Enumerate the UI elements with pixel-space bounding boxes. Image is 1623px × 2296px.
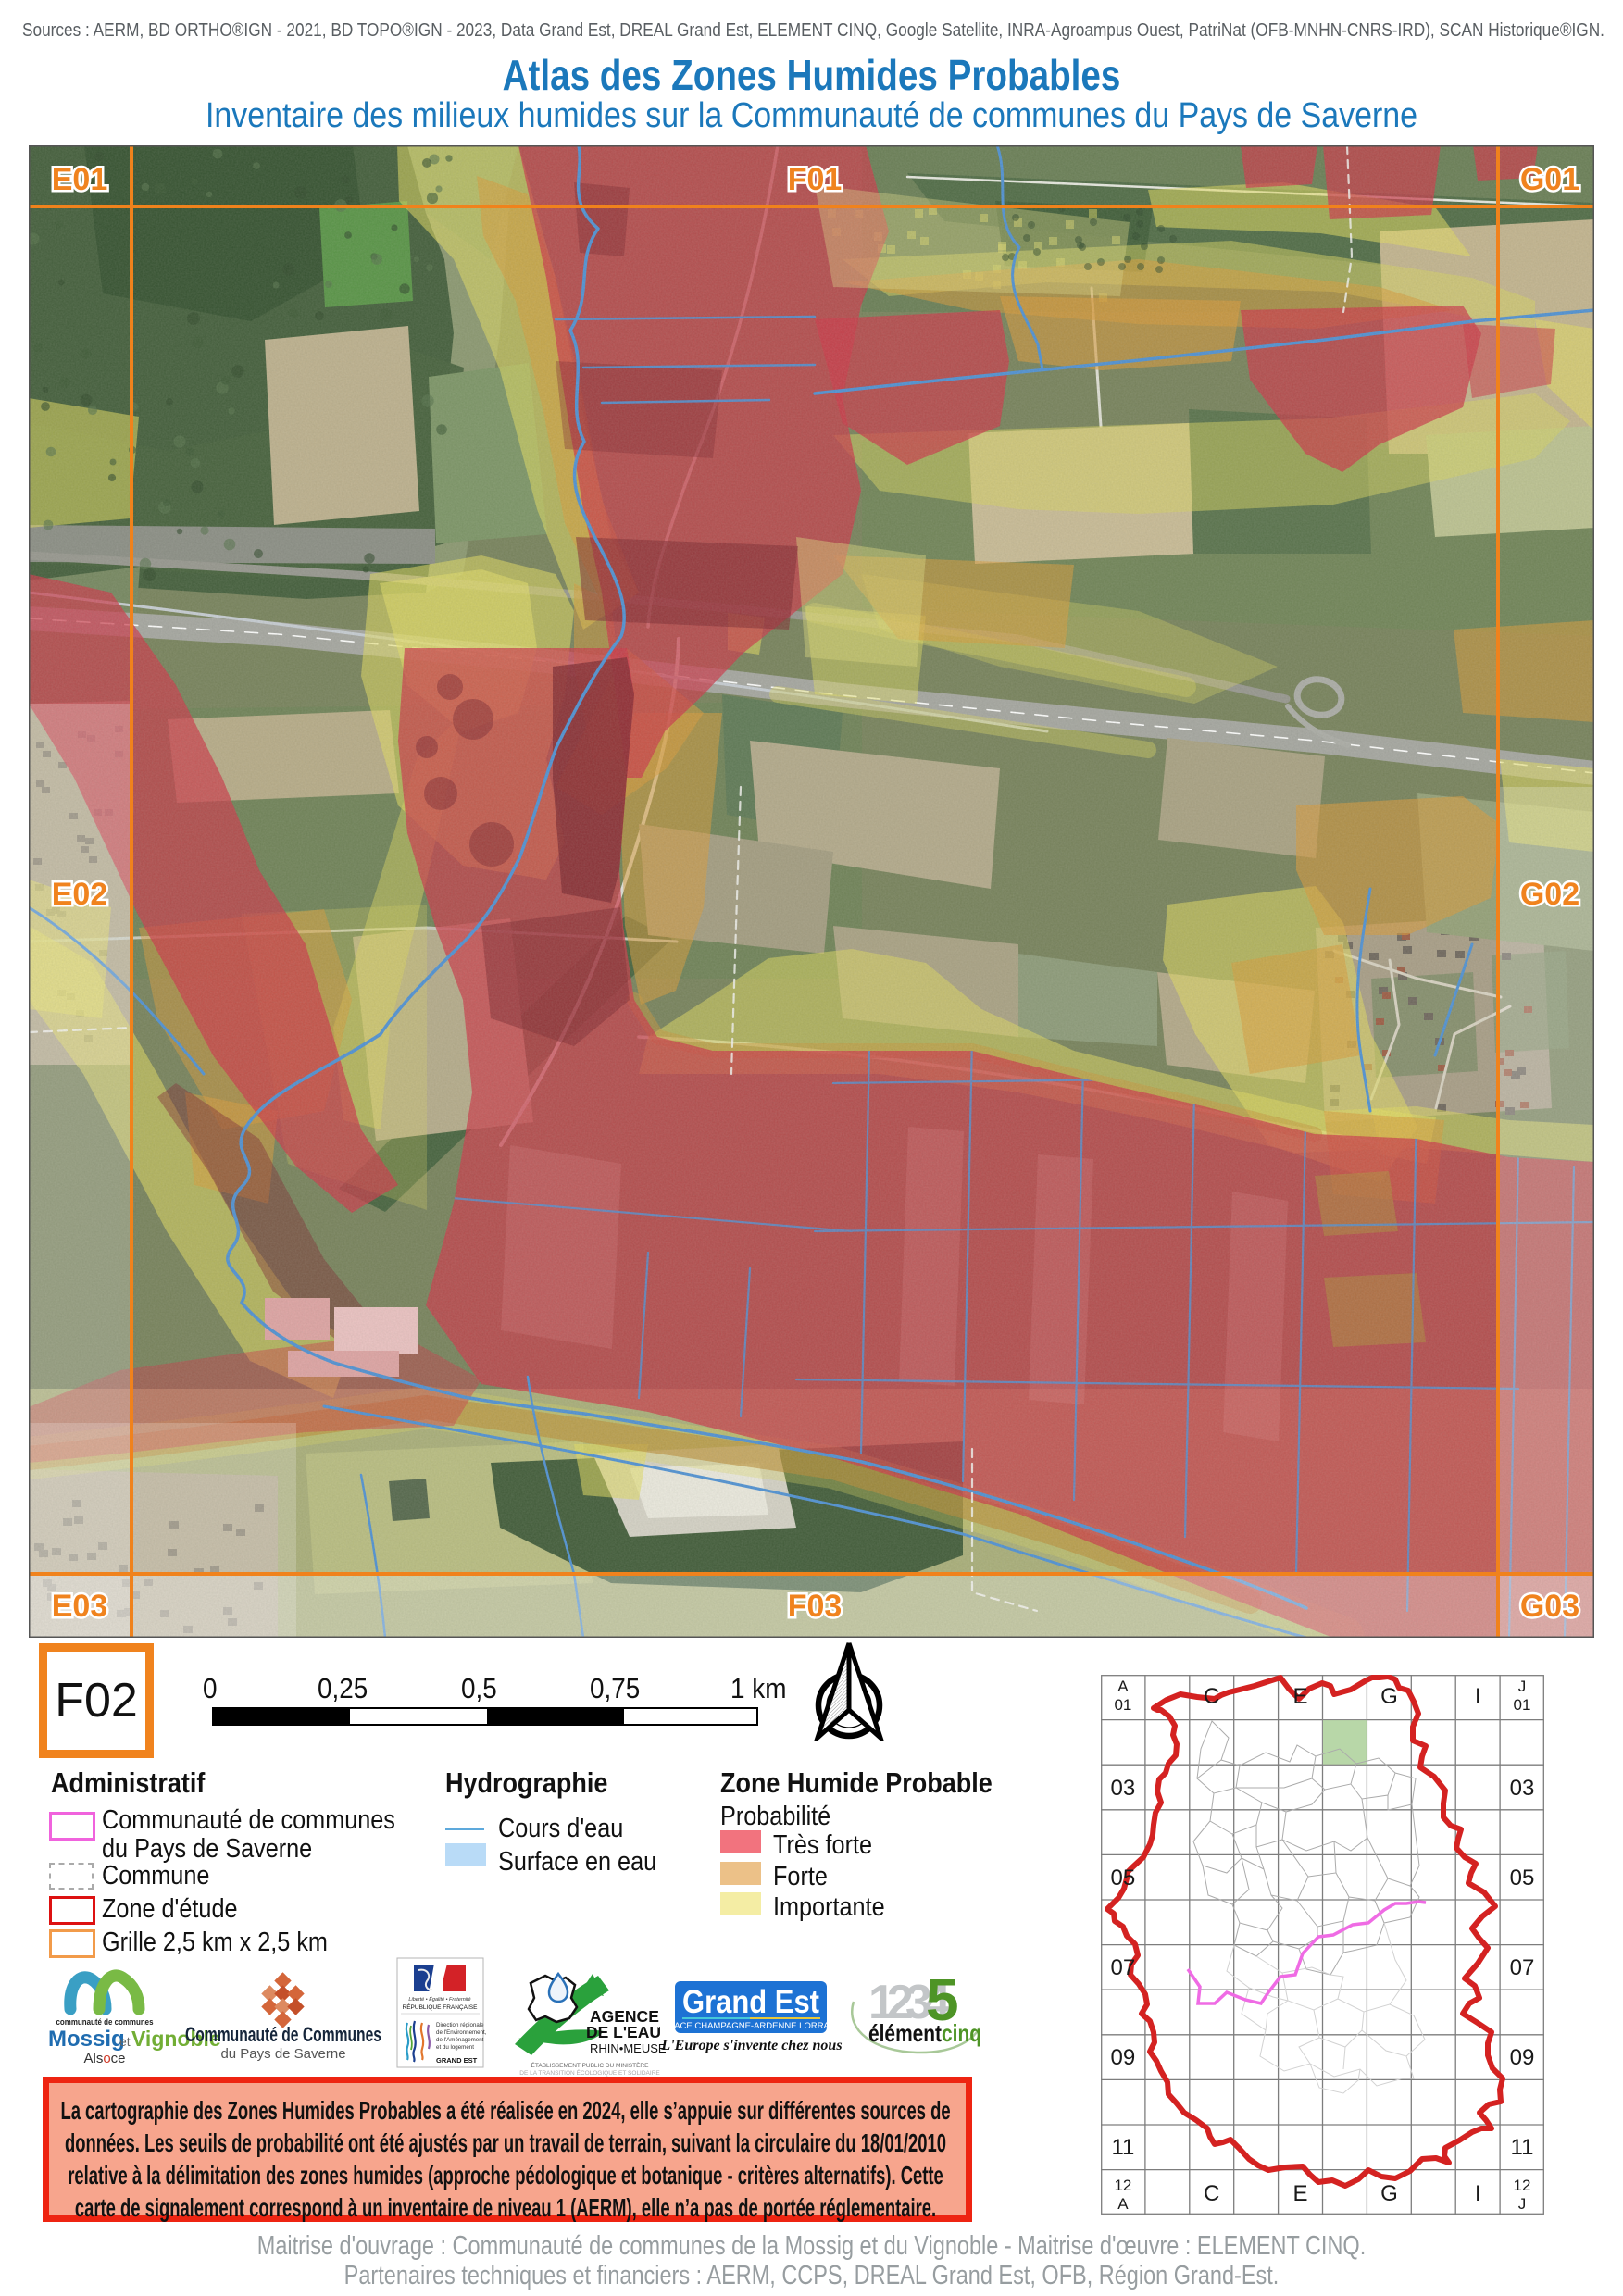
svg-text:J: J <box>1518 2195 1527 2213</box>
svg-text:A: A <box>1117 1678 1129 1695</box>
svg-text:Grand Est: Grand Est <box>682 1984 819 2020</box>
svg-text:05: 05 <box>1111 1865 1136 1890</box>
svg-text:E02: E02 <box>52 877 108 912</box>
svg-text:RHIN•MEUSE: RHIN•MEUSE <box>590 2041 667 2055</box>
svg-text:E03: E03 <box>52 1589 108 1624</box>
svg-text:E: E <box>1292 1684 1307 1709</box>
svg-text:05: 05 <box>1510 1865 1535 1890</box>
svg-text:E01: E01 <box>52 162 108 197</box>
svg-text:DE LA TRANSITION ÉCOLOGIQUE ET: DE LA TRANSITION ÉCOLOGIQUE ET SOLIDAIRE <box>519 2068 660 2077</box>
svg-text:09: 09 <box>1111 2045 1136 2070</box>
svg-text:communauté de communes: communauté de communes <box>56 2017 154 2027</box>
svg-text:03: 03 <box>1510 1776 1535 1801</box>
svg-text:G: G <box>1380 1684 1398 1709</box>
svg-text:C: C <box>1204 1684 1219 1709</box>
svg-text:G: G <box>1380 2181 1398 2206</box>
svg-text:01: 01 <box>1514 1696 1531 1714</box>
svg-text:G03: G03 <box>1520 1589 1579 1624</box>
svg-text:GRAND EST: GRAND EST <box>436 2056 478 2065</box>
svg-text:de l'Aménagement: de l'Aménagement <box>436 2037 484 2043</box>
svg-text:F03: F03 <box>788 1589 843 1624</box>
svg-text:du Pays de Saverne: du Pays de Saverne <box>220 2046 345 2062</box>
svg-text:11: 11 <box>1511 2135 1534 2160</box>
svg-text:I: I <box>1475 1684 1481 1709</box>
svg-text:12: 12 <box>1114 2177 1131 2194</box>
svg-text:Direction régionale: Direction régionale <box>436 2022 484 2028</box>
svg-text:Mossig: Mossig <box>48 2027 125 2052</box>
svg-text:I: I <box>1475 2181 1481 2206</box>
svg-text:03: 03 <box>1111 1776 1136 1801</box>
svg-text:07: 07 <box>1510 1955 1535 1980</box>
svg-text:ALSACE CHAMPAGNE-ARDENNE LORRA: ALSACE CHAMPAGNE-ARDENNE LORRAINE <box>657 2021 843 2031</box>
svg-text:E: E <box>1292 2181 1307 2206</box>
svg-text:DE L'EAU: DE L'EAU <box>586 2023 661 2041</box>
svg-text:A: A <box>1117 2195 1129 2213</box>
svg-text:12: 12 <box>1514 2177 1531 2194</box>
svg-text:G02: G02 <box>1520 877 1579 912</box>
svg-text:ÉTABLISSEMENT PUBLIC DU MINIST: ÉTABLISSEMENT PUBLIC DU MINISTÈRE <box>531 2061 650 2069</box>
svg-text:Communauté de Communes: Communauté de Communes <box>185 2023 381 2046</box>
svg-text:01: 01 <box>1114 1696 1131 1714</box>
svg-text:de l'Environnement,: de l'Environnement, <box>436 2029 487 2036</box>
svg-text:C: C <box>1204 2181 1219 2206</box>
svg-text:L'Europe s'invente chez nous: L'Europe s'invente chez nous <box>660 2038 842 2053</box>
svg-text:F01: F01 <box>788 162 843 197</box>
svg-text:J: J <box>1518 1678 1527 1695</box>
svg-text:G01: G01 <box>1520 162 1579 197</box>
svg-text:11: 11 <box>1111 2135 1134 2160</box>
svg-text:élémentcinq: élémentcinq <box>868 2019 981 2047</box>
svg-text:et: et <box>119 2034 131 2049</box>
svg-text:Alsoce: Alsoce <box>83 2051 125 2066</box>
svg-text:Liberté • Égalité • Fraternité: Liberté • Égalité • Fraternité <box>408 1996 470 2003</box>
svg-text:09: 09 <box>1510 2045 1535 2070</box>
svg-text:07: 07 <box>1111 1955 1136 1980</box>
svg-text:RÉPUBLIQUE FRANÇAISE: RÉPUBLIQUE FRANÇAISE <box>403 2003 479 2011</box>
svg-text:et du logement: et du logement <box>436 2044 474 2051</box>
